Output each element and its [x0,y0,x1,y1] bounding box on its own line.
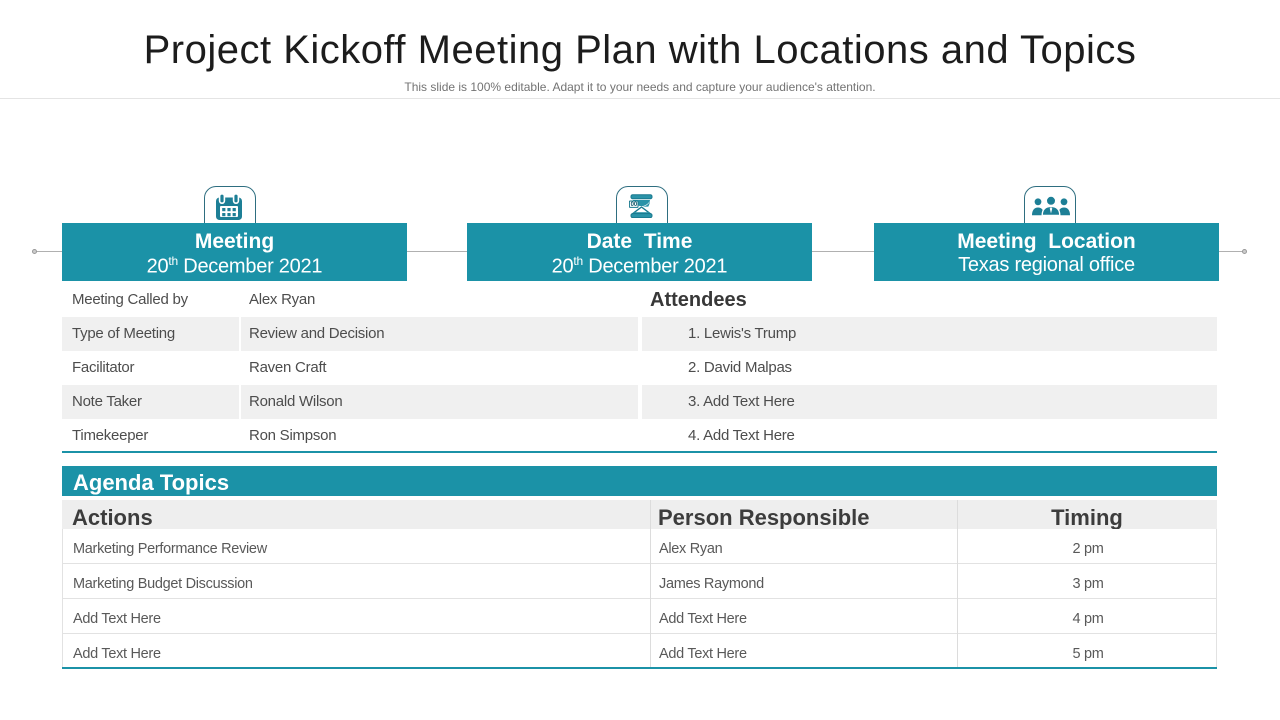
svg-text:00: 00 [631,202,638,208]
